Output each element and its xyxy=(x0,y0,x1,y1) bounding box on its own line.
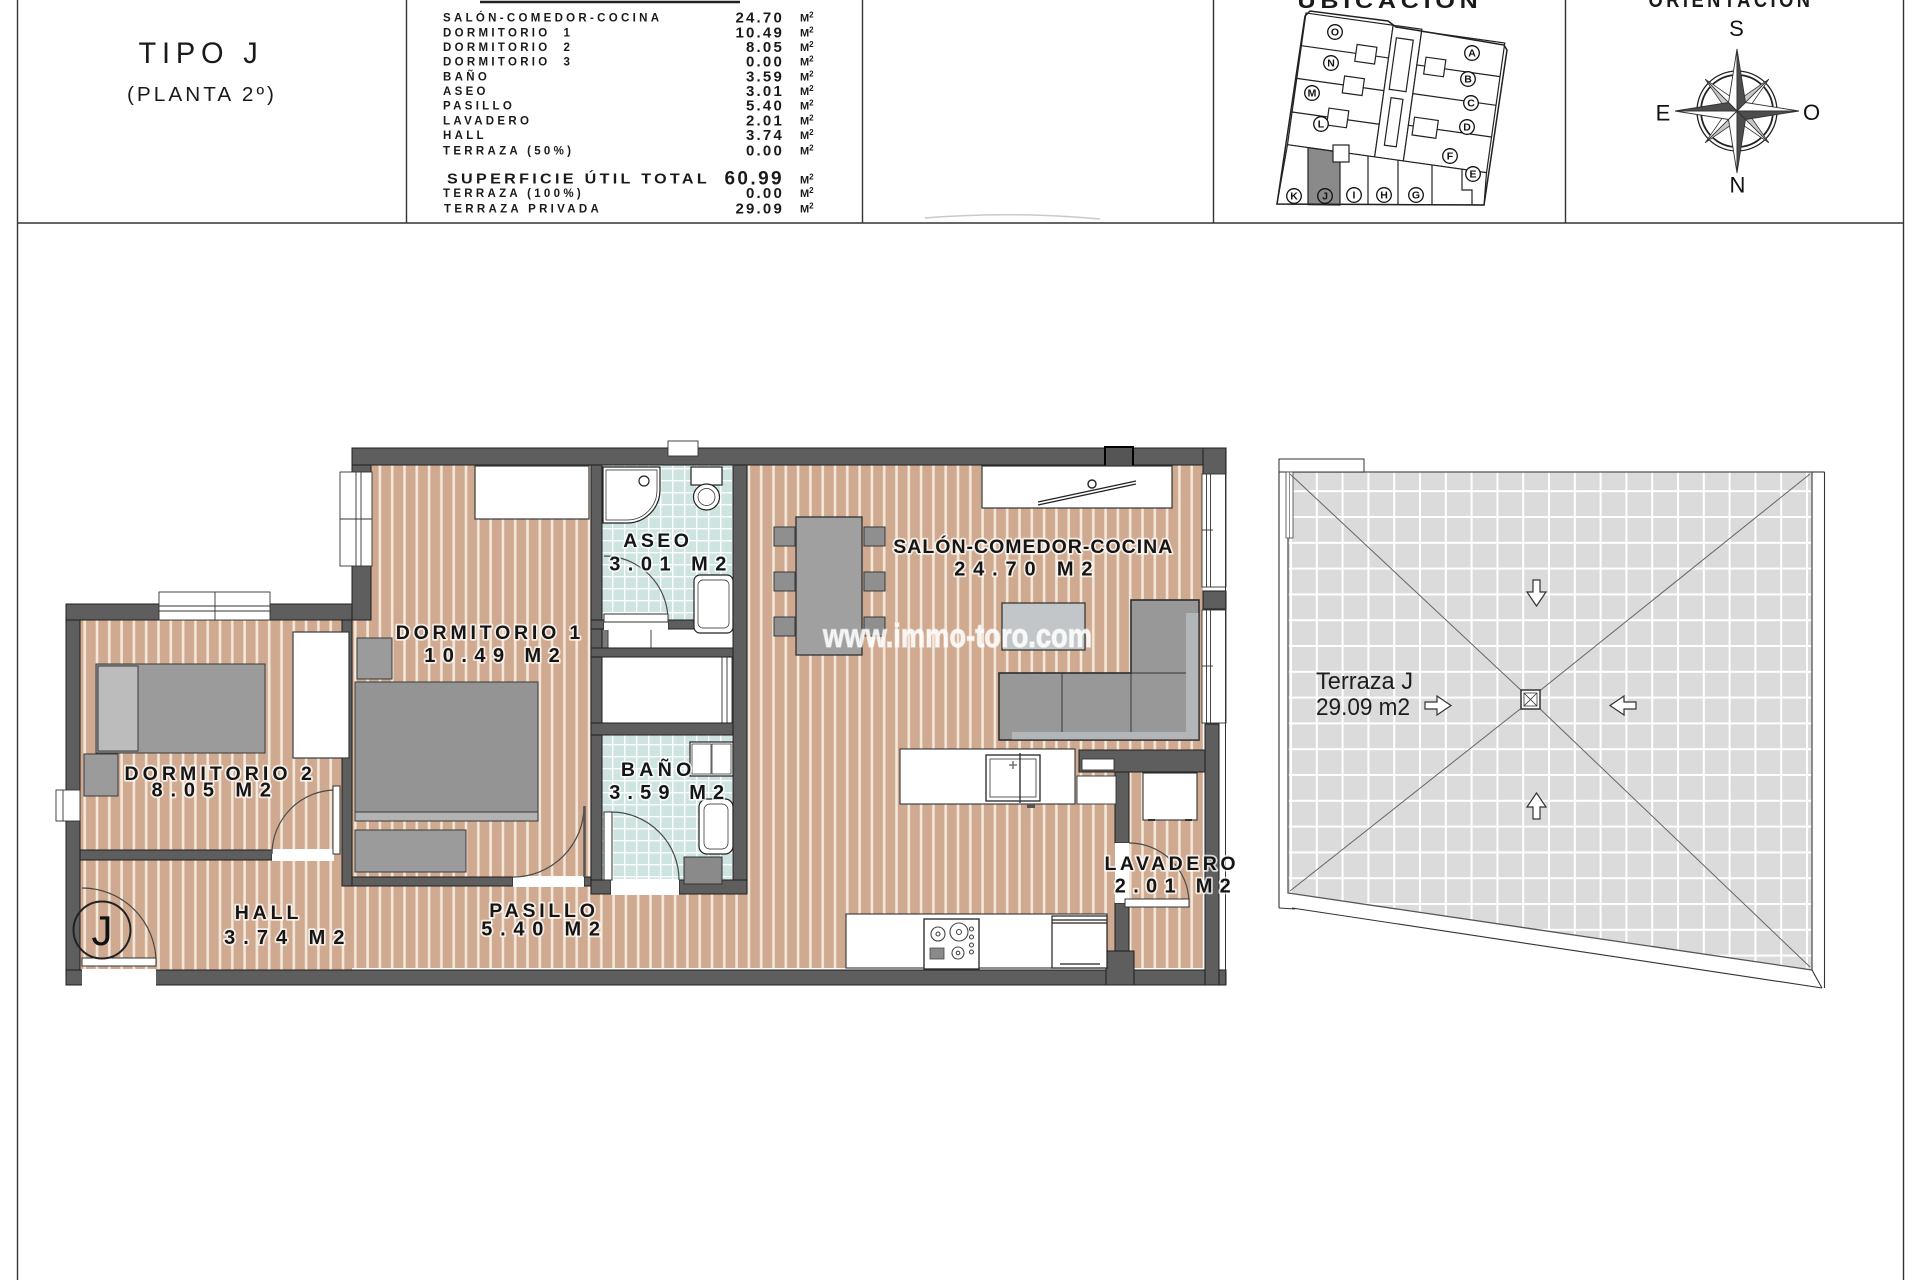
svg-text:DORMITORIO 1: DORMITORIO 1 xyxy=(443,27,573,39)
svg-text:UBICACIÓN: UBICACIÓN xyxy=(1298,0,1483,13)
svg-text:LAVADERO: LAVADERO xyxy=(1105,853,1236,875)
svg-text:B: B xyxy=(1464,74,1472,86)
svg-text:www.immo-toro.com: www.immo-toro.com xyxy=(822,617,1092,654)
svg-text:SALÓN-COMEDOR-COCINA: SALÓN-COMEDOR-COCINA xyxy=(893,534,1172,558)
svg-text:SUPERFICIE ÚTIL TOTAL: SUPERFICIE ÚTIL TOTAL xyxy=(447,170,710,188)
svg-text:E: E xyxy=(1469,169,1476,181)
svg-text:E: E xyxy=(1656,101,1671,126)
svg-text:60.99: 60.99 xyxy=(724,169,784,190)
svg-text:O: O xyxy=(1331,27,1339,39)
svg-text:10.49 M2: 10.49 M2 xyxy=(424,645,560,667)
svg-text:G: G xyxy=(1412,190,1420,202)
svg-text:BAÑO: BAÑO xyxy=(443,70,490,83)
svg-text:K: K xyxy=(1290,191,1298,203)
svg-text:N: N xyxy=(1730,173,1746,198)
svg-text:D: D xyxy=(1463,122,1471,134)
svg-text:ORIENTACIÓN: ORIENTACIÓN xyxy=(1649,0,1814,12)
svg-text:HALL: HALL xyxy=(443,130,487,142)
svg-text:A: A xyxy=(1468,48,1476,60)
svg-text:F: F xyxy=(1447,151,1454,163)
svg-text:ASEO: ASEO xyxy=(443,86,489,98)
svg-text:L: L xyxy=(1318,119,1325,131)
svg-text:TERRAZA PRIVADA: TERRAZA PRIVADA xyxy=(444,204,602,216)
svg-text:DORMITORIO 3: DORMITORIO 3 xyxy=(443,57,573,69)
svg-text:TERRAZA (50%): TERRAZA (50%) xyxy=(443,146,574,158)
svg-text:(PLANTA 2º): (PLANTA 2º) xyxy=(127,83,277,106)
svg-text:TIPO J: TIPO J xyxy=(139,37,264,70)
svg-text:S: S xyxy=(1729,16,1744,41)
svg-text:C: C xyxy=(1467,98,1475,110)
svg-text:I: I xyxy=(1353,190,1356,202)
svg-text:PASILLO: PASILLO xyxy=(443,101,515,113)
svg-text:Terraza J: Terraza J xyxy=(1316,668,1413,695)
svg-text:LAVADERO: LAVADERO xyxy=(443,115,532,127)
svg-text:3.74: 3.74 xyxy=(746,127,784,144)
svg-text:0.00: 0.00 xyxy=(746,143,784,160)
svg-text:HALL: HALL xyxy=(235,902,299,924)
svg-text:TERRAZA (100%): TERRAZA (100%) xyxy=(443,188,584,200)
svg-text:N: N xyxy=(1327,58,1335,70)
svg-text:DORMITORIO 2: DORMITORIO 2 xyxy=(443,42,573,54)
svg-text:M: M xyxy=(1308,88,1317,100)
svg-text:DORMITORIO 1: DORMITORIO 1 xyxy=(396,622,581,644)
svg-text:29.09: 29.09 xyxy=(735,201,784,218)
svg-text:H: H xyxy=(1380,190,1388,202)
svg-text:J: J xyxy=(92,907,113,954)
svg-text:O: O xyxy=(1803,100,1820,125)
svg-text:29.09 m2: 29.09 m2 xyxy=(1316,694,1410,721)
svg-text:SALÓN-COMEDOR-COCINA: SALÓN-COMEDOR-COCINA xyxy=(443,12,662,25)
svg-text:J: J xyxy=(1322,191,1328,203)
